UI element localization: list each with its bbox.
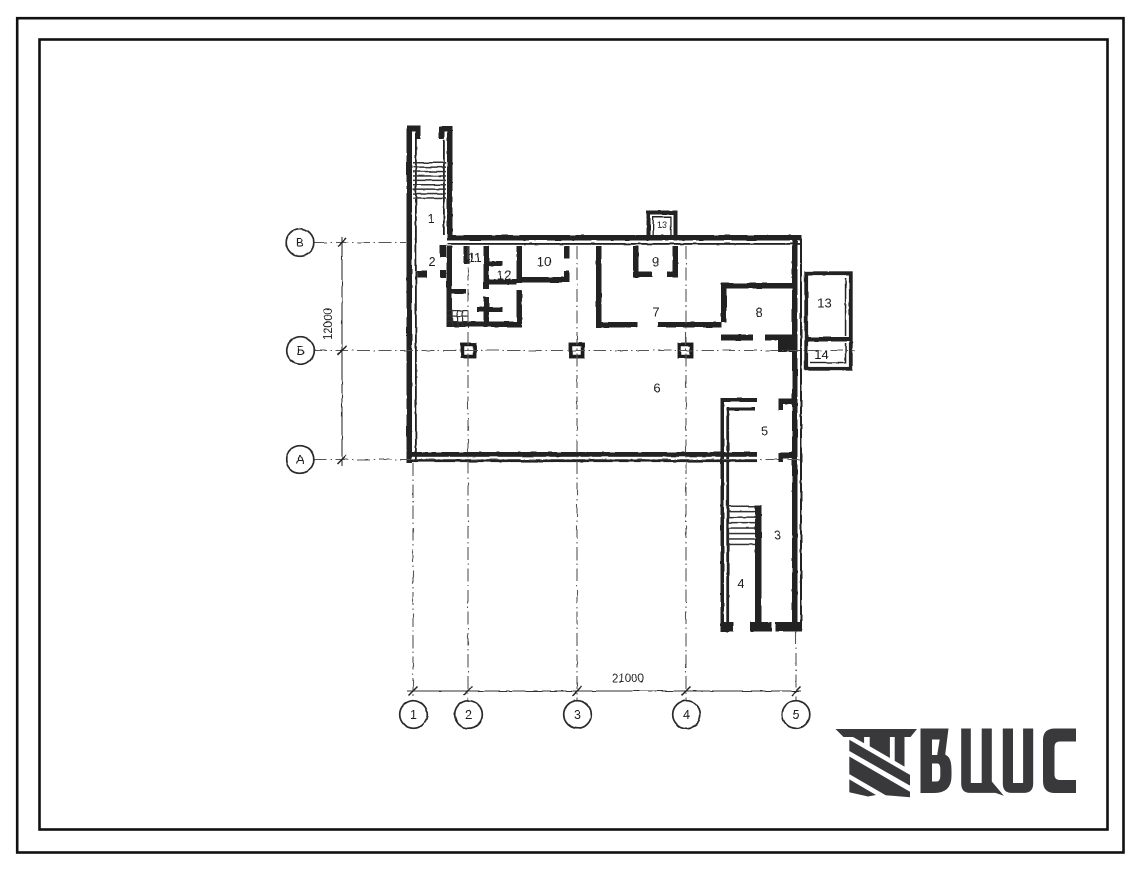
svg-text:9: 9: [652, 255, 659, 270]
svg-text:11: 11: [468, 250, 482, 265]
svg-text:14: 14: [814, 347, 828, 362]
svg-text:Б: Б: [296, 344, 304, 358]
svg-text:3: 3: [774, 528, 781, 543]
svg-text:12000: 12000: [323, 308, 335, 340]
svg-text:8: 8: [755, 305, 762, 320]
svg-text:2: 2: [465, 708, 472, 722]
svg-text:1: 1: [410, 708, 417, 722]
svg-text:В: В: [296, 236, 304, 250]
svg-text:21000: 21000: [612, 673, 644, 685]
svg-text:4: 4: [683, 708, 690, 722]
svg-text:1: 1: [427, 211, 434, 226]
svg-text:6: 6: [653, 381, 660, 396]
svg-text:3: 3: [574, 708, 581, 722]
svg-text:10: 10: [537, 254, 551, 269]
svg-text:13: 13: [657, 220, 668, 231]
svg-text:5: 5: [761, 424, 768, 439]
svg-text:2: 2: [428, 254, 435, 269]
svg-text:А: А: [296, 453, 305, 467]
svg-text:12: 12: [497, 268, 511, 283]
svg-text:7: 7: [652, 305, 659, 320]
svg-text:5: 5: [793, 708, 800, 722]
svg-text:13: 13: [817, 296, 831, 311]
svg-text:4: 4: [737, 576, 744, 591]
